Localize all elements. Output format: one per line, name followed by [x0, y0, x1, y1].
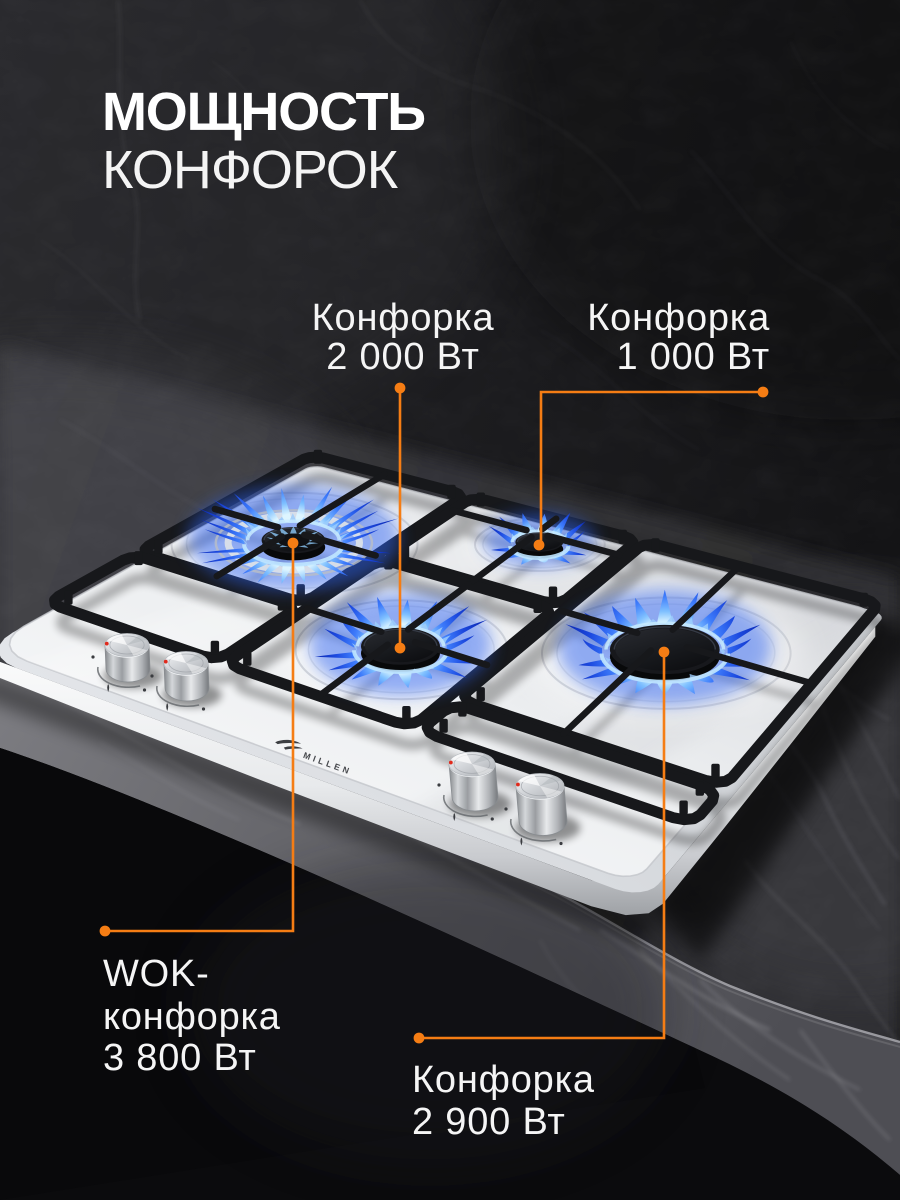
svg-text:Конфорка: Конфорка — [412, 1059, 595, 1101]
svg-text:WOK-: WOK- — [103, 953, 210, 995]
svg-text:2 000 Вт: 2 000 Вт — [326, 336, 480, 378]
svg-text:конфорка: конфорка — [103, 996, 281, 1038]
svg-text:Конфорка: Конфорка — [587, 297, 770, 339]
svg-text:Конфорка: Конфорка — [312, 297, 495, 339]
svg-text:КОНФОРОК: КОНФОРОК — [102, 140, 399, 200]
svg-text:1 000 Вт: 1 000 Вт — [616, 336, 770, 378]
svg-text:3 800 Вт: 3 800 Вт — [103, 1037, 257, 1079]
svg-text:2 900 Вт: 2 900 Вт — [412, 1101, 566, 1143]
svg-text:МОЩНОСТЬ: МОЩНОСТЬ — [102, 82, 425, 142]
